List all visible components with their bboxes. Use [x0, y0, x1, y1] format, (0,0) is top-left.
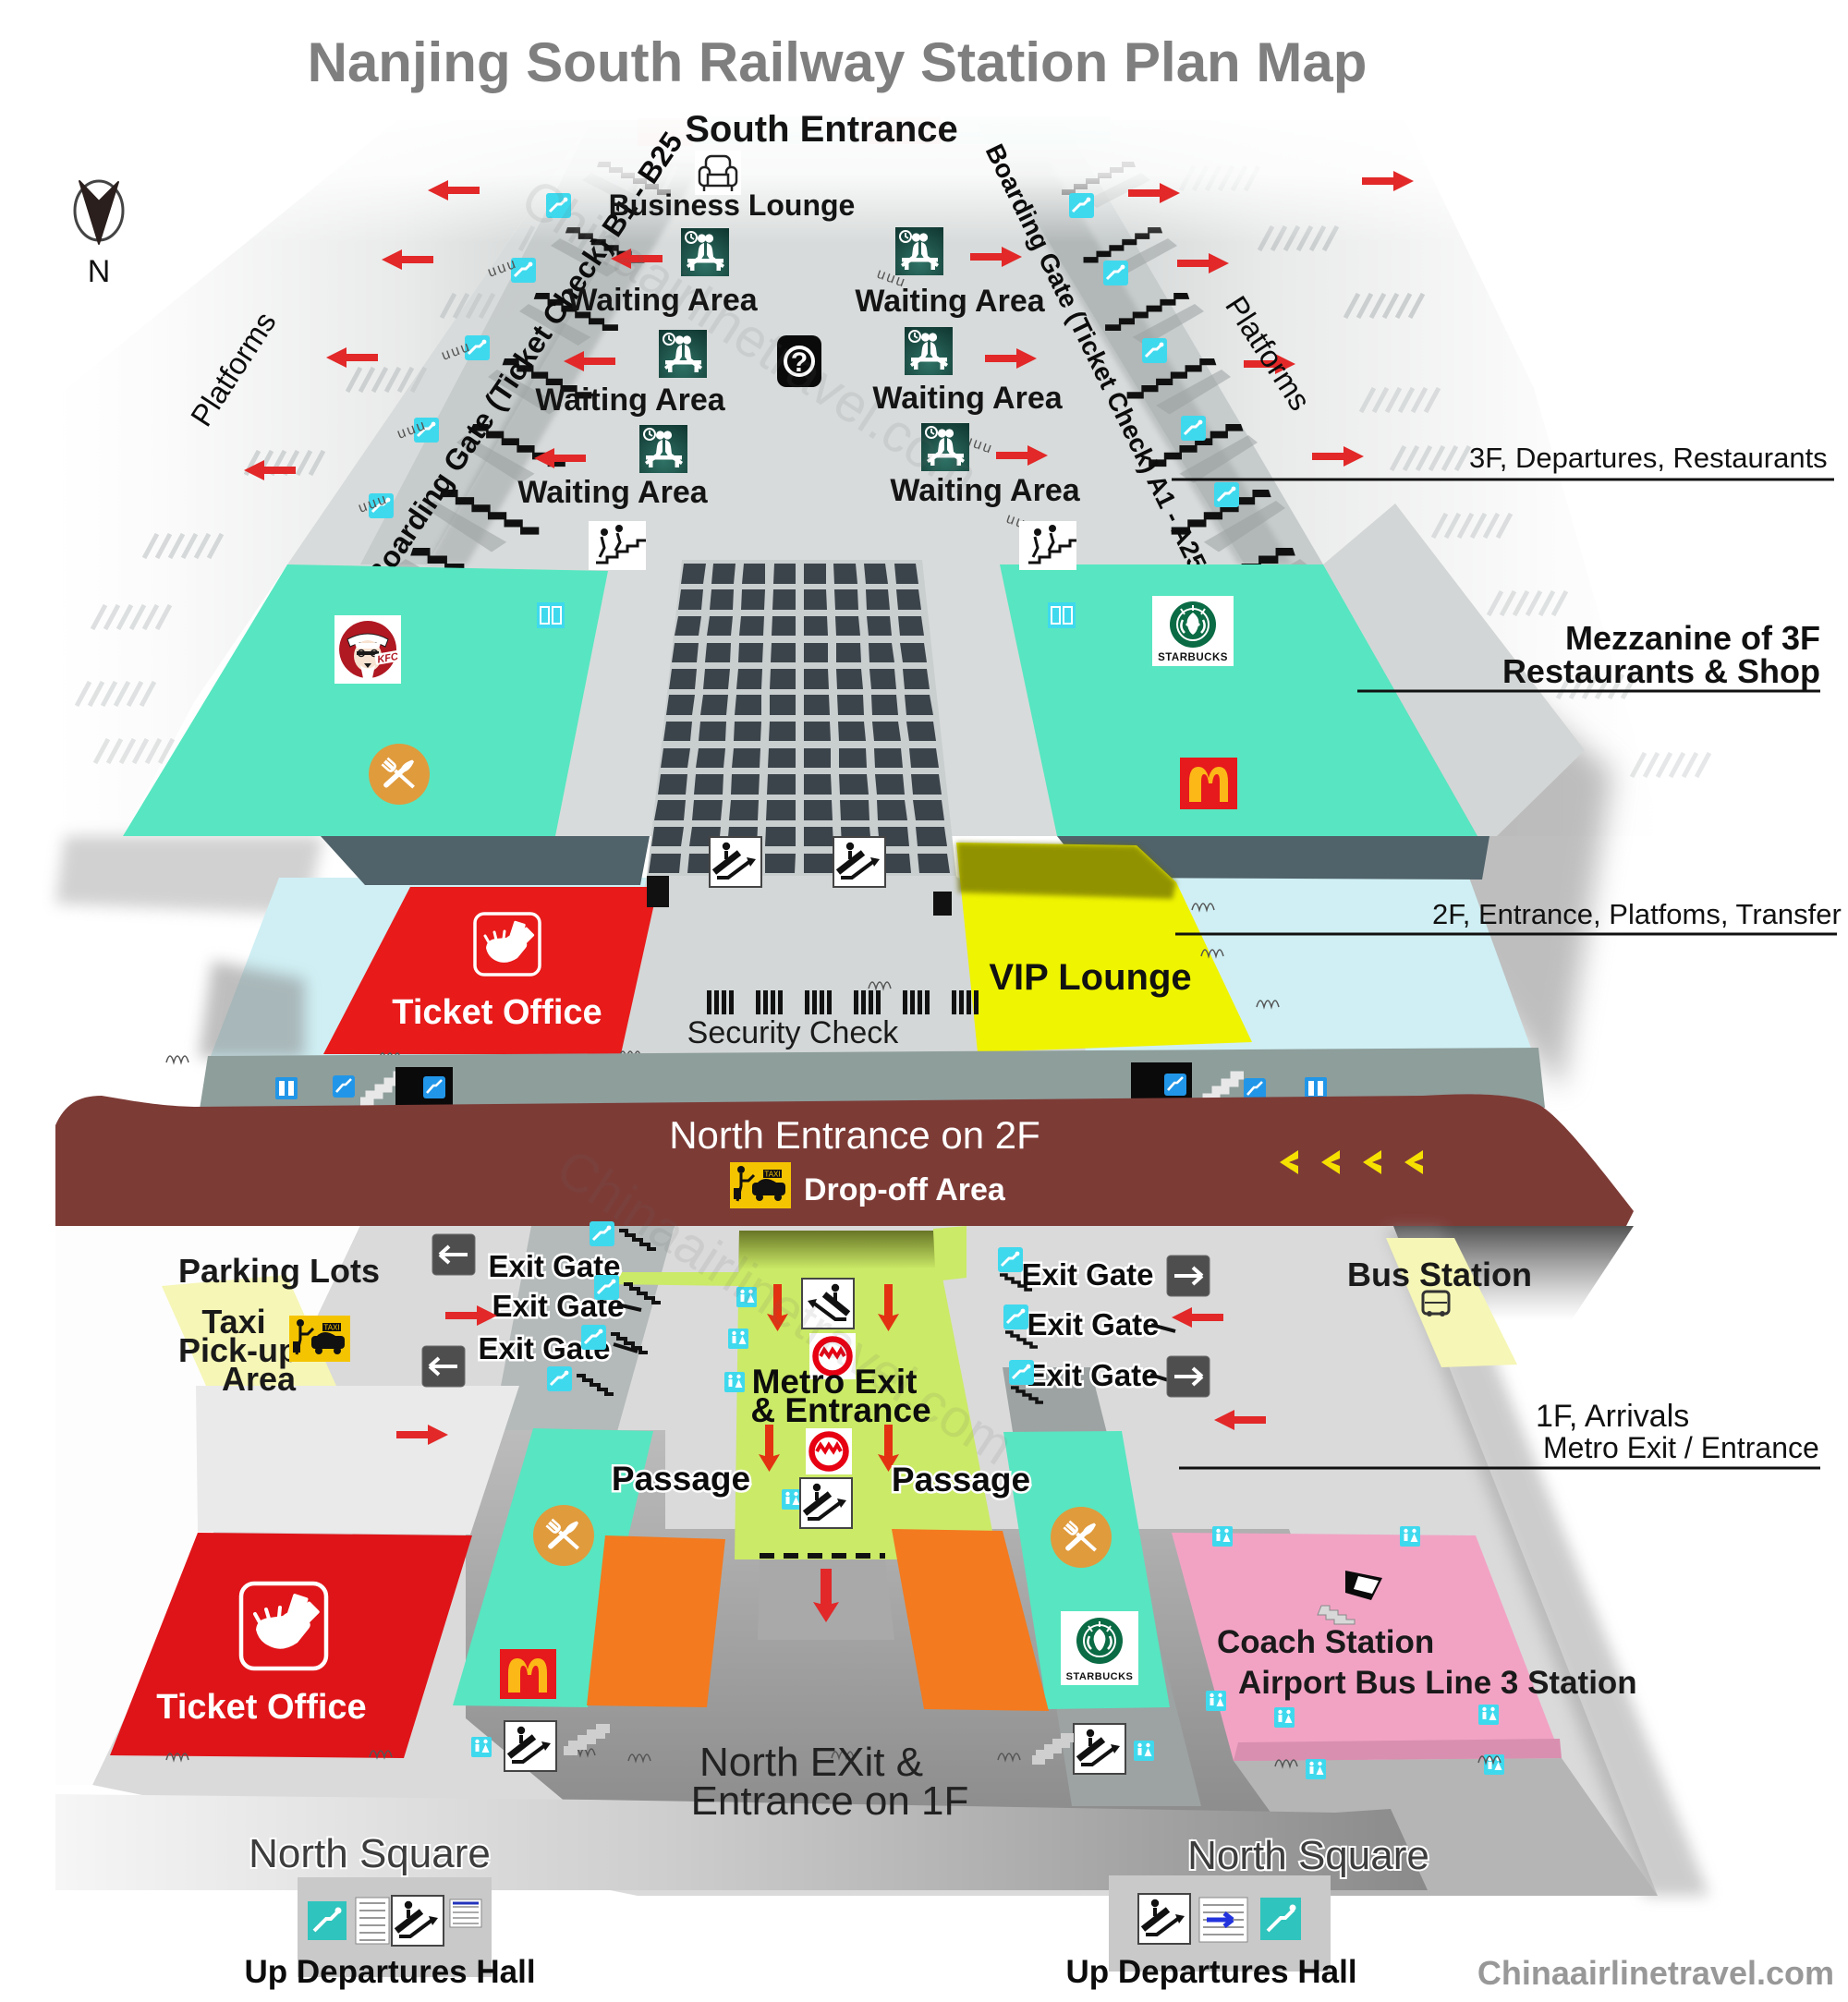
svg-text:Mezzanine of 3F: Mezzanine of 3F: [1565, 619, 1820, 657]
svg-text:Passage: Passage: [892, 1461, 1030, 1498]
svg-text:Exit Gate: Exit Gate: [1027, 1307, 1159, 1341]
svg-text:Ticket Office: Ticket Office: [156, 1688, 366, 1727]
svg-text:Drop-off Area: Drop-off Area: [804, 1172, 1006, 1207]
svg-text:STARBUCKS: STARBUCKS: [1066, 1671, 1134, 1682]
svg-text:VIP Lounge: VIP Lounge: [989, 957, 1191, 998]
svg-text:STARBUCKS: STARBUCKS: [1158, 652, 1228, 663]
svg-text:Bus Station: Bus Station: [1347, 1256, 1532, 1293]
svg-text:Waiting Area: Waiting Area: [855, 284, 1045, 319]
svg-text:Security Check: Security Check: [687, 1015, 900, 1050]
svg-text:Ticket Office: Ticket Office: [392, 993, 602, 1032]
svg-text:North Square: North Square: [1187, 1833, 1429, 1878]
svg-text:Parking Lots: Parking Lots: [178, 1252, 380, 1290]
svg-text:3F, Departures, Restaurants: 3F, Departures, Restaurants: [1469, 442, 1828, 474]
svg-text:South Entrance: South Entrance: [685, 109, 958, 150]
svg-text:Airport Bus Line 3 Station: Airport Bus Line 3 Station: [1238, 1665, 1637, 1701]
svg-text:Metro Exit / Entrance: Metro Exit / Entrance: [1543, 1431, 1819, 1464]
svg-text:2F, Entrance, Platfoms, Transf: 2F, Entrance, Platfoms, Transfer: [1432, 898, 1842, 930]
svg-text:Nanjing South Railway Station: Nanjing South Railway Station Plan Map: [308, 31, 1368, 93]
svg-text:Chinaairlinetravel.com: Chinaairlinetravel.com: [1477, 1954, 1834, 1992]
svg-text:Area: Area: [222, 1360, 297, 1398]
svg-text:Exit Gate: Exit Gate: [1021, 1257, 1153, 1292]
svg-text:Waiting Area: Waiting Area: [535, 382, 725, 418]
svg-text:Coach Station: Coach Station: [1217, 1624, 1434, 1660]
svg-text:Waiting Area: Waiting Area: [517, 475, 708, 510]
svg-text:Restaurants & Shop: Restaurants & Shop: [1502, 652, 1820, 690]
svg-text:North Square: North Square: [249, 1831, 491, 1876]
svg-text:TAXI: TAXI: [323, 1324, 339, 1332]
svg-text:Up Departures Hall: Up Departures Hall: [1065, 1954, 1356, 1990]
svg-text:North Entrance on 2F: North Entrance on 2F: [669, 1113, 1040, 1157]
svg-text:TAXI: TAXI: [764, 1171, 780, 1179]
svg-text:1F, Arrivals: 1F, Arrivals: [1536, 1399, 1689, 1434]
svg-text:Entrance on 1F: Entrance on 1F: [691, 1778, 969, 1824]
svg-text:Passage: Passage: [612, 1460, 750, 1498]
svg-text:Up Departures Hall: Up Departures Hall: [244, 1954, 535, 1990]
svg-text:Exit Gate: Exit Gate: [1026, 1358, 1158, 1392]
svg-text:N: N: [88, 254, 111, 289]
svg-text:Business Lounge: Business Lounge: [609, 188, 856, 222]
